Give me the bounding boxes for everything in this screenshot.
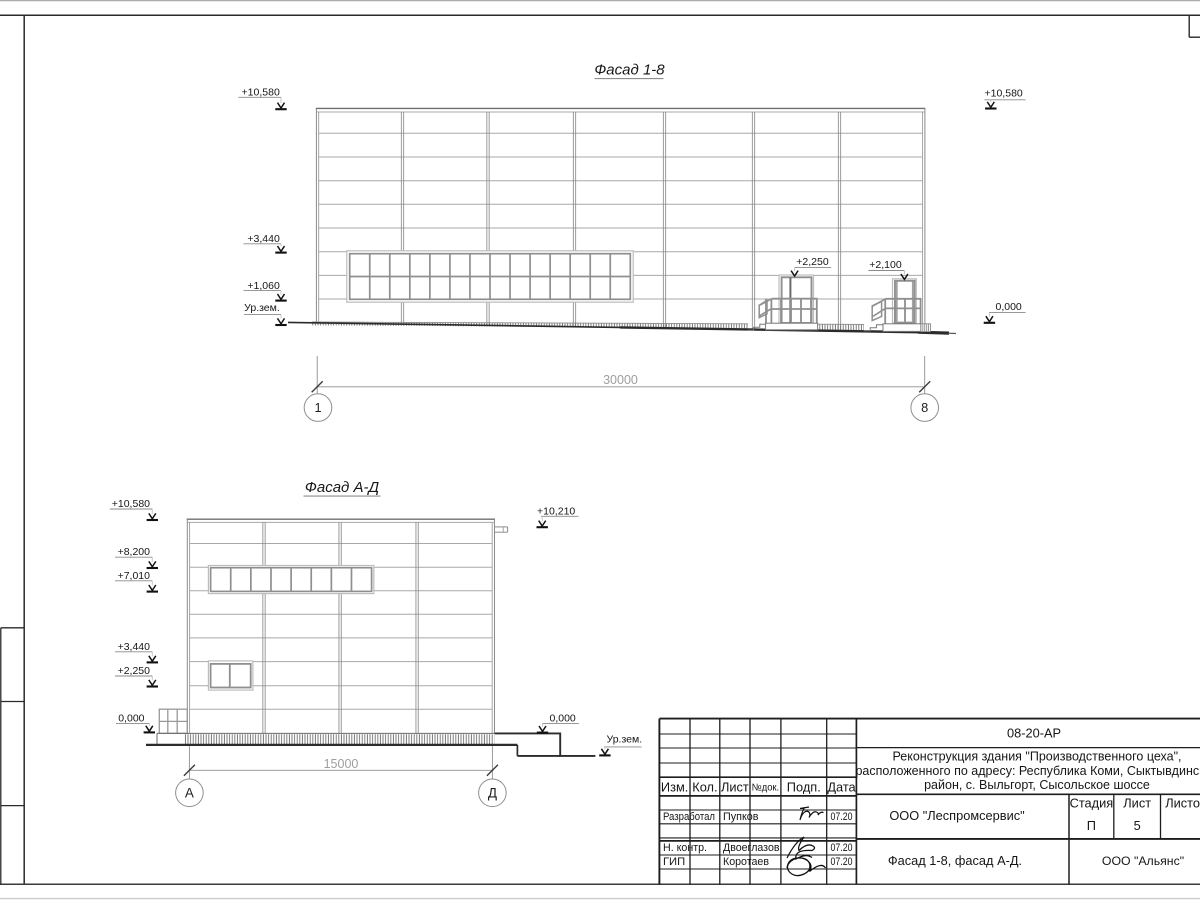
svg-text:Пупков: Пупков [723,811,759,823]
svg-text:0,000: 0,000 [118,712,144,724]
svg-text:Фасад 1-8: Фасад 1-8 [594,62,665,79]
svg-text:+3,440: +3,440 [247,233,280,245]
svg-text:15000: 15000 [324,757,359,771]
svg-text:8: 8 [921,400,928,415]
svg-text:Д: Д [488,786,497,801]
svg-text:+2,250: +2,250 [796,256,829,268]
svg-text:Кол.: Кол. [692,779,717,794]
svg-text:+1,060: +1,060 [247,280,280,292]
svg-text:ГИП: ГИП [663,856,685,868]
svg-text:+8,200: +8,200 [118,546,151,558]
svg-text:07.20: 07.20 [831,811,853,823]
svg-text:+7,010: +7,010 [118,570,151,582]
svg-text:Ур.зем.: Ур.зем. [244,302,280,314]
svg-text:Фасад 1-8, фасад А-Д.: Фасад 1-8, фасад А-Д. [888,853,1022,868]
svg-text:1: 1 [314,400,321,415]
svg-text:расположенного по адресу: Респ: расположенного по адресу: Республика Ком… [855,764,1200,778]
svg-text:07.20: 07.20 [831,856,853,868]
svg-text:+2,100: +2,100 [869,259,902,271]
svg-text:08-20-АР: 08-20-АР [1007,726,1061,741]
svg-text:Листов: Листов [1165,796,1200,811]
svg-text:Лист: Лист [1123,796,1151,811]
svg-text:ООО "Леспромсервис": ООО "Леспромсервис" [889,808,1024,823]
svg-text:Ур.зем.: Ур.зем. [607,733,643,745]
svg-text:+10,580: +10,580 [985,88,1023,100]
svg-text:Двоеглазов: Двоеглазов [723,842,780,854]
svg-text:30000: 30000 [603,373,638,387]
svg-text:Лист: Лист [721,779,749,794]
svg-text:Изм.: Изм. [661,779,688,794]
svg-text:+2,250: +2,250 [118,665,151,677]
svg-text:Разработал: Разработал [663,811,715,823]
svg-text:Фасад А-Д: Фасад А-Д [305,479,380,496]
svg-text:+10,580: +10,580 [242,86,280,98]
svg-text:0,000: 0,000 [550,712,576,724]
svg-text:А: А [185,786,194,801]
svg-text:+10,580: +10,580 [112,498,150,510]
svg-text:№док.: №док. [752,782,780,793]
svg-text:Реконструкция здания "Производ: Реконструкция здания "Производственного … [893,750,1182,764]
svg-text:ООО "Альянс": ООО "Альянс" [1102,854,1184,868]
svg-text:П: П [1087,818,1096,833]
svg-text:5: 5 [1134,818,1141,833]
svg-text:Стадия: Стадия [1070,796,1114,811]
svg-text:+10,210: +10,210 [537,505,575,517]
svg-text:0,000: 0,000 [996,301,1022,313]
svg-text:район, с. Выльгорт, Сысольское: район, с. Выльгорт, Сысольское шоссе [924,778,1150,792]
svg-text:Подп.: Подп. [787,779,821,794]
svg-text:Дата: Дата [827,779,856,794]
svg-text:07.20: 07.20 [831,842,853,854]
svg-text:Коротаев: Коротаев [723,856,769,868]
svg-text:+3,440: +3,440 [118,641,151,653]
svg-text:Н. контр.: Н. контр. [663,842,707,854]
